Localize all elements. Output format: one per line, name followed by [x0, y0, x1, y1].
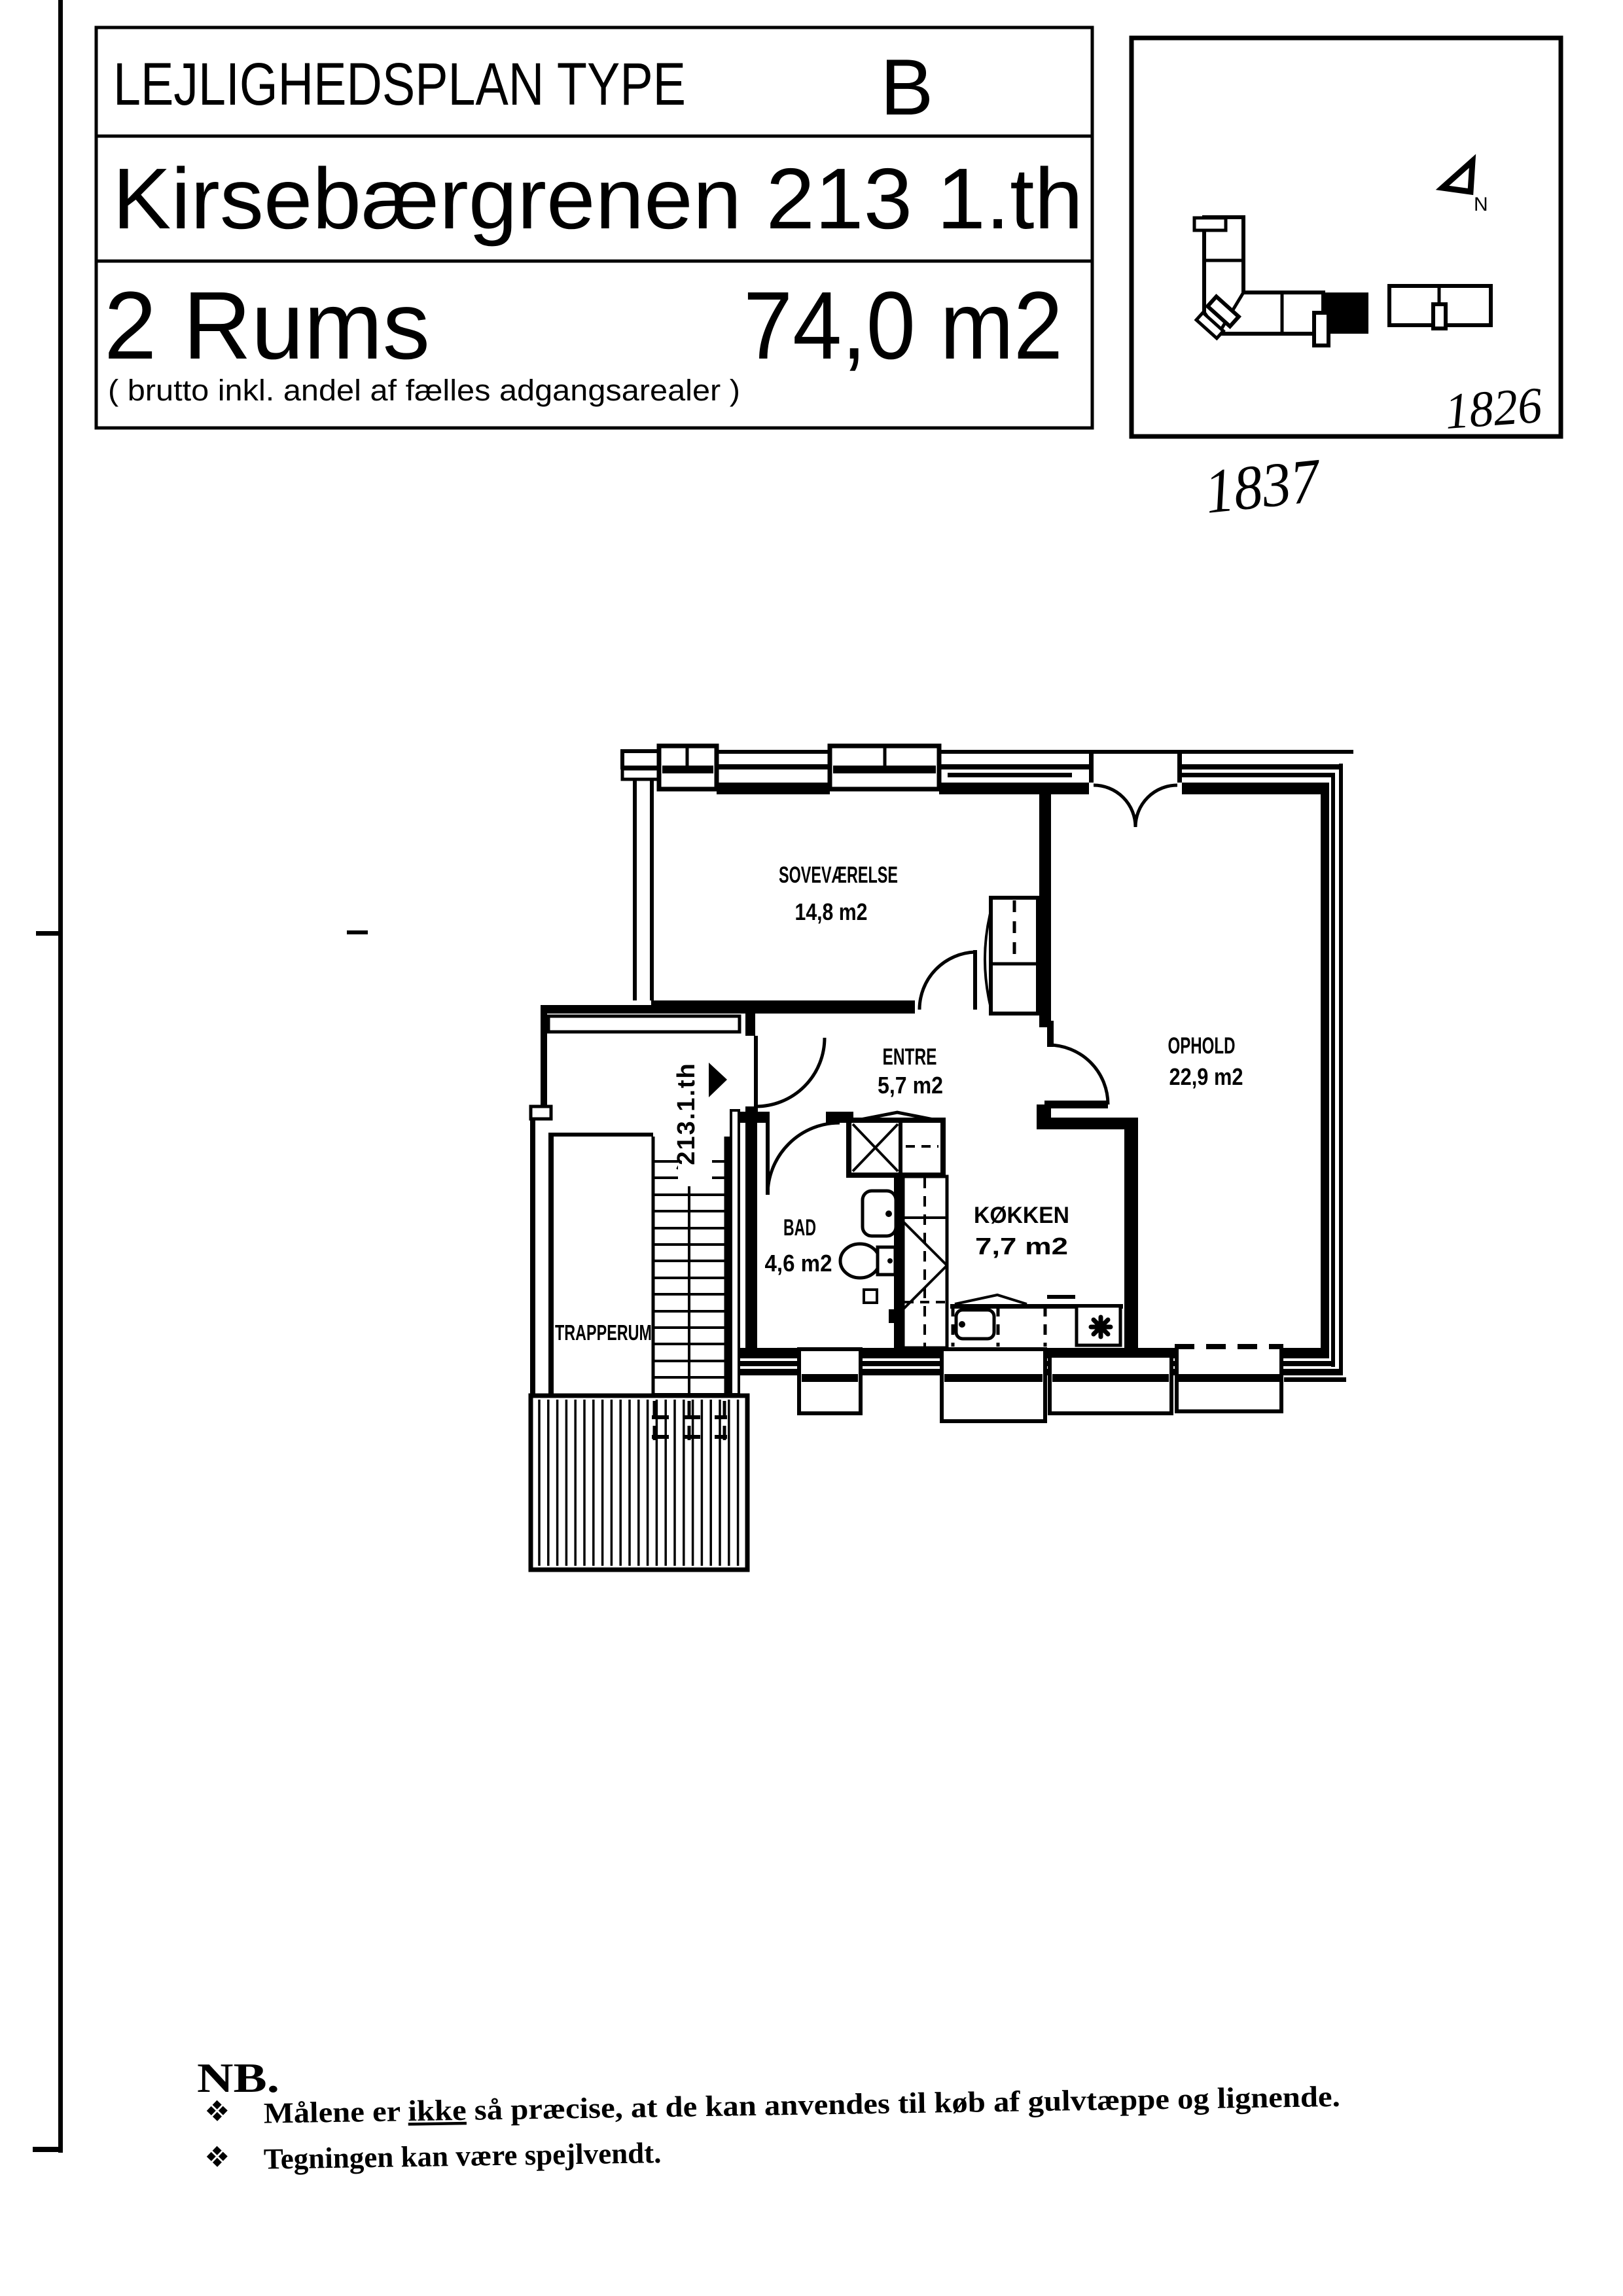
svg-text:74,0 m2: 74,0 m2 [743, 272, 1063, 380]
svg-text:ENTRE: ENTRE [883, 1044, 937, 1070]
svg-text:1837: 1837 [1202, 445, 1325, 527]
svg-text:1826: 1826 [1443, 376, 1544, 440]
svg-text:TRAPPERUM: TRAPPERUM [555, 1320, 652, 1345]
svg-text:5,7 m2: 5,7 m2 [878, 1072, 943, 1099]
svg-text:22,9 m2: 22,9 m2 [1169, 1063, 1243, 1090]
svg-text:2 Rums: 2 Rums [104, 272, 430, 380]
svg-text:( brutto inkl. andel af fælles: ( brutto inkl. andel af fælles adgangsar… [108, 374, 740, 407]
svg-text:14,8 m2: 14,8 m2 [795, 898, 868, 925]
svg-text:4,6 m2: 4,6 m2 [765, 1250, 832, 1277]
svg-text:Kirsebærgrenen 213 1.th: Kirsebærgrenen 213 1.th [113, 150, 1083, 247]
svg-text:N: N [1474, 194, 1488, 215]
svg-text:Tegningen kan være spejlvendt.: Tegningen kan være spejlvendt. [263, 2136, 661, 2176]
svg-text:7,7 m2: 7,7 m2 [975, 1233, 1068, 1260]
svg-text:NB.: NB. [197, 2055, 279, 2101]
svg-text:LEJLIGHEDSPLAN TYPE: LEJLIGHEDSPLAN TYPE [113, 51, 686, 118]
svg-text:OPHOLD: OPHOLD [1168, 1033, 1236, 1059]
svg-text:B: B [880, 43, 933, 132]
svg-text:BAD: BAD [783, 1215, 816, 1241]
svg-text:KØKKEN: KØKKEN [974, 1203, 1069, 1228]
svg-text:213.1.th: 213.1.th [673, 1062, 700, 1165]
svg-text:SOVEVÆRELSE: SOVEVÆRELSE [779, 862, 898, 888]
